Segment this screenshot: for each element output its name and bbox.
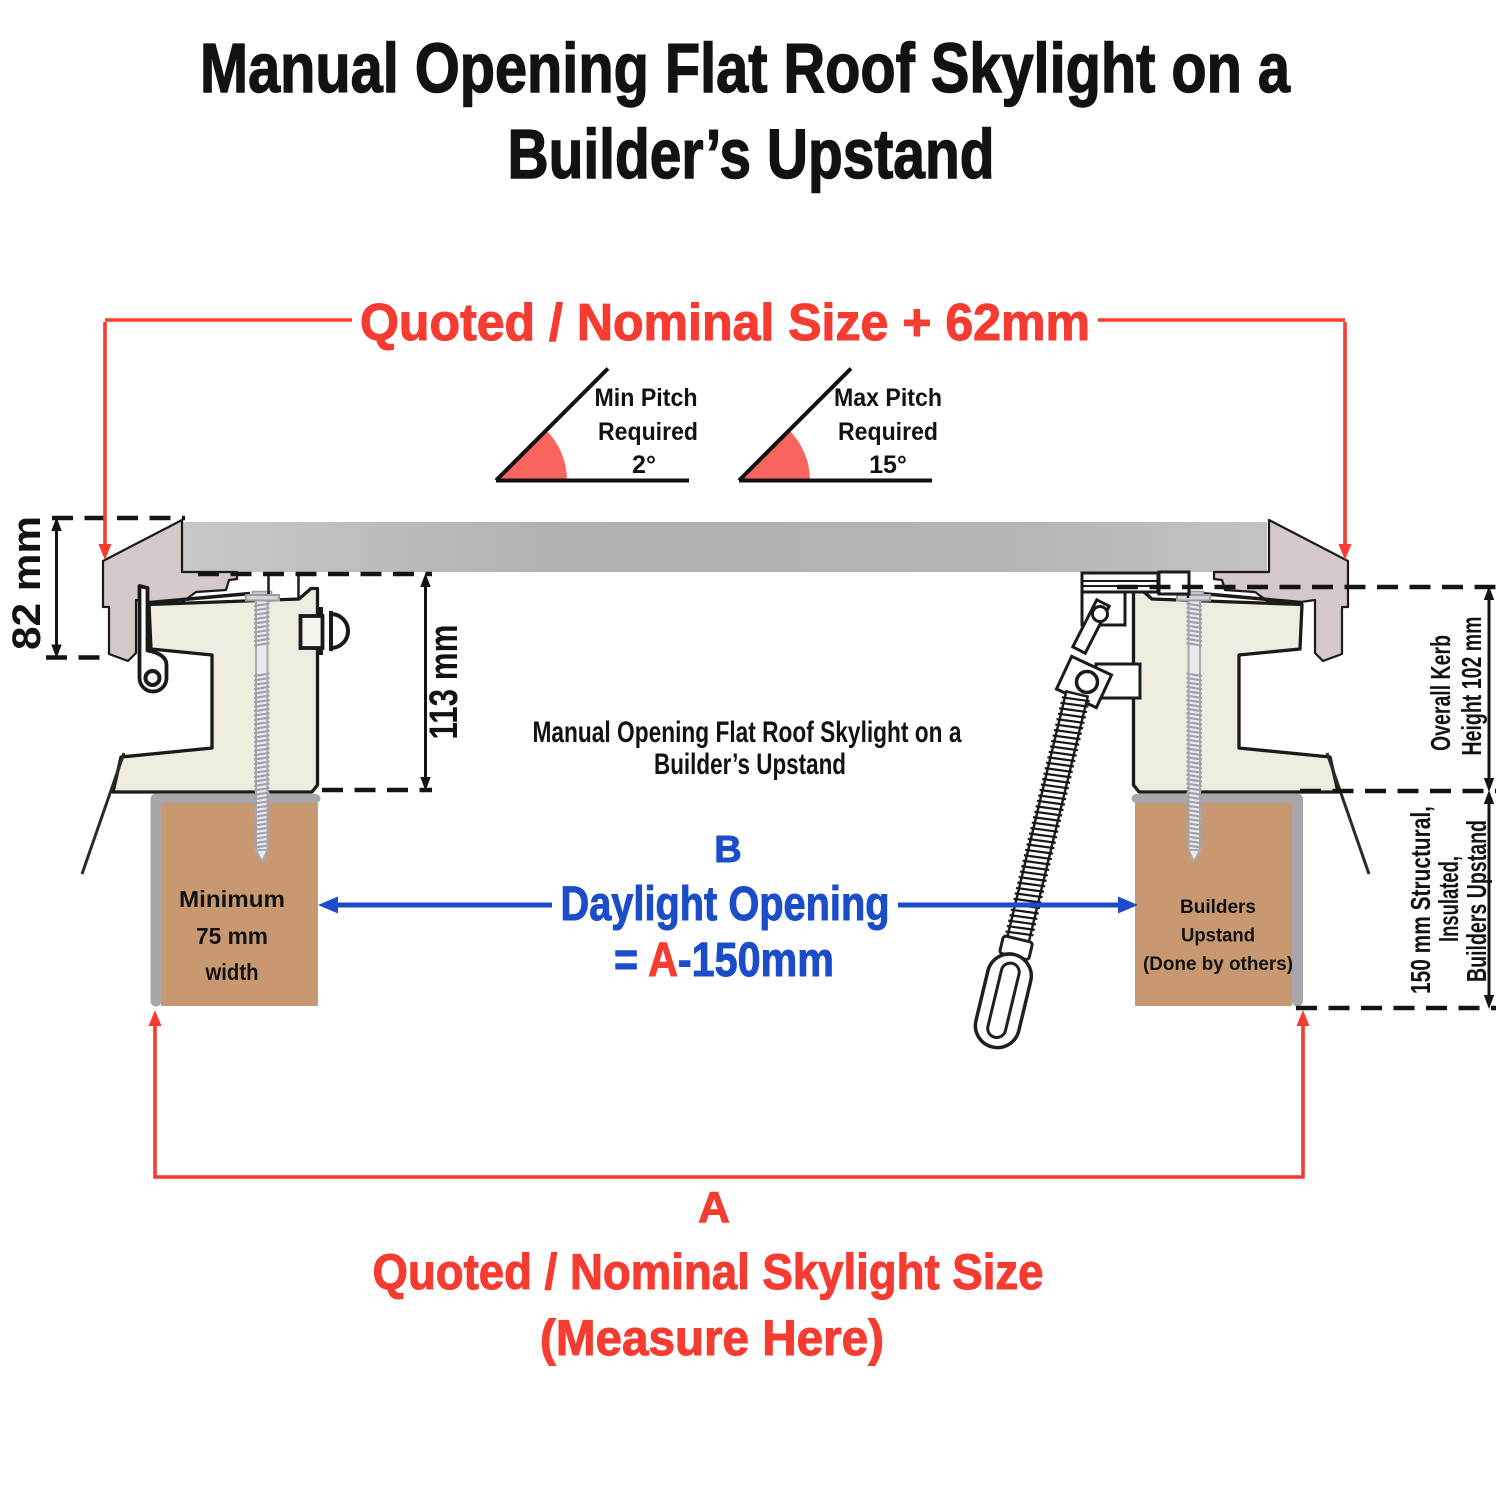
svg-text:Height 102 mm: Height 102 mm bbox=[1456, 617, 1487, 756]
svg-text:A: A bbox=[698, 1183, 730, 1232]
svg-text:Upstand: Upstand bbox=[1181, 925, 1255, 947]
svg-text:(Measure Here): (Measure Here) bbox=[540, 1309, 884, 1366]
svg-text:Max Pitch: Max Pitch bbox=[834, 384, 942, 412]
svg-text:75 mm: 75 mm bbox=[196, 923, 268, 949]
svg-text:Builder’s Upstand: Builder’s Upstand bbox=[508, 115, 995, 193]
svg-text:(Done by others): (Done by others) bbox=[1143, 953, 1293, 975]
svg-text:15°: 15° bbox=[869, 451, 907, 479]
svg-text:width: width bbox=[205, 959, 259, 985]
svg-text:Builders Upstand: Builders Upstand bbox=[1461, 820, 1492, 982]
svg-text:Manual Opening Flat Roof Skyli: Manual Opening Flat Roof Skylight on a bbox=[200, 29, 1291, 107]
svg-text:Quoted / Nominal Size + 62mm: Quoted / Nominal Size + 62mm bbox=[360, 294, 1090, 352]
svg-text:Builders: Builders bbox=[1180, 896, 1256, 918]
svg-text:113 mm: 113 mm bbox=[422, 625, 466, 740]
svg-text:82 mm: 82 mm bbox=[5, 516, 49, 650]
svg-text:= A-150mm: = A-150mm bbox=[614, 934, 834, 987]
svg-text:Insulated,: Insulated, bbox=[1433, 856, 1464, 942]
svg-text:2°: 2° bbox=[632, 451, 656, 479]
svg-text:Min Pitch: Min Pitch bbox=[595, 384, 698, 412]
svg-text:150 mm Structural,: 150 mm Structural, bbox=[1405, 806, 1436, 994]
svg-text:Manual Opening Flat Roof Skyli: Manual Opening Flat Roof Skylight on a bbox=[533, 716, 962, 749]
svg-text:Required: Required bbox=[598, 418, 698, 446]
svg-text:B: B bbox=[714, 829, 741, 871]
svg-text:Builder’s Upstand: Builder’s Upstand bbox=[654, 748, 846, 781]
svg-text:Required: Required bbox=[838, 418, 938, 446]
svg-text:Overall Kerb: Overall Kerb bbox=[1425, 635, 1456, 751]
svg-text:Minimum: Minimum bbox=[179, 886, 285, 912]
svg-text:Daylight Opening: Daylight Opening bbox=[561, 878, 890, 931]
svg-text:Quoted / Nominal Skylight Size: Quoted / Nominal Skylight Size bbox=[373, 1243, 1044, 1300]
